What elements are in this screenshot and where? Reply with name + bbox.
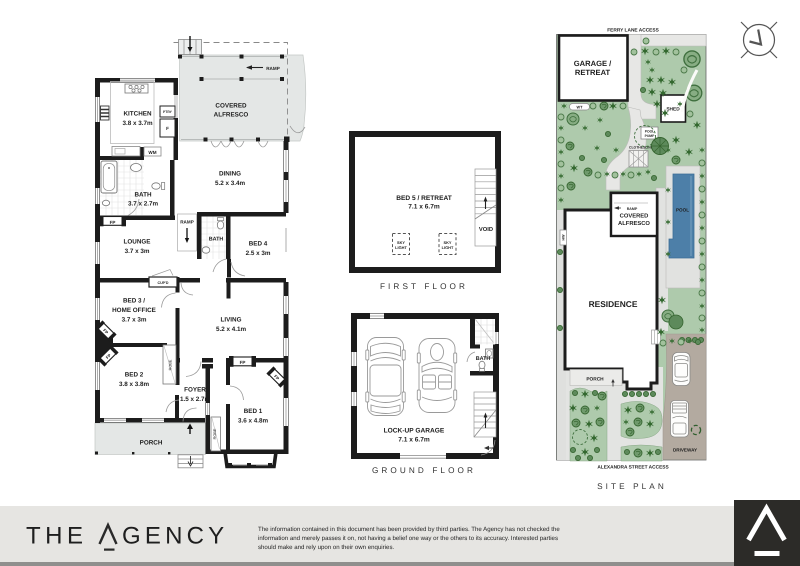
svg-text:5.2 x 4.1m: 5.2 x 4.1m: [216, 326, 247, 333]
svg-text:3.7 x 2.7m: 3.7 x 2.7m: [128, 201, 159, 208]
svg-text:PORCH: PORCH: [586, 377, 604, 383]
svg-text:THE: THE: [26, 523, 88, 550]
svg-text:3.6 x 4.8m: 3.6 x 4.8m: [238, 418, 269, 425]
svg-text:BED 5 / RETREAT: BED 5 / RETREAT: [396, 195, 452, 202]
svg-text:GARAGE /: GARAGE /: [574, 59, 612, 68]
svg-text:KITCHEN: KITCHEN: [124, 110, 152, 117]
svg-text:ROBE: ROBE: [213, 428, 217, 439]
svg-text:HW: HW: [562, 234, 566, 241]
svg-text:COVERED: COVERED: [620, 213, 649, 220]
svg-text:DRIVEWAY: DRIVEWAY: [673, 448, 697, 453]
svg-text:BATH: BATH: [209, 237, 224, 243]
svg-text:LIVING: LIVING: [221, 317, 242, 324]
svg-text:GENCY: GENCY: [122, 523, 228, 550]
svg-text:RAMP: RAMP: [180, 220, 194, 225]
svg-text:RAMP: RAMP: [627, 207, 638, 211]
svg-text:FERRY LANE ACCESS: FERRY LANE ACCESS: [607, 28, 659, 34]
svg-text:3.8 x 3.7m: 3.8 x 3.7m: [122, 120, 153, 127]
svg-text:FIRST FLOOR: FIRST FLOOR: [380, 282, 468, 291]
svg-text:BED 4: BED 4: [249, 241, 268, 248]
svg-text:ALFRESCO: ALFRESCO: [618, 220, 650, 227]
svg-text:BATH: BATH: [476, 356, 491, 362]
svg-text:2.5 x 3m: 2.5 x 3m: [246, 250, 271, 257]
svg-text:F: F: [166, 126, 169, 131]
svg-text:3.7 x 3m: 3.7 x 3m: [122, 317, 147, 324]
svg-text:CUP'D: CUP'D: [157, 281, 168, 285]
svg-text:LIGHT: LIGHT: [395, 245, 407, 250]
svg-text:BED 3 /: BED 3 /: [123, 298, 145, 305]
svg-text:RETREAT: RETREAT: [575, 68, 611, 77]
svg-text:FP: FP: [110, 220, 116, 225]
svg-text:CLOTHESLINE: CLOTHESLINE: [629, 146, 654, 150]
svg-text:GROUND FLOOR: GROUND FLOOR: [372, 466, 476, 475]
svg-text:1.5 x 2.7m: 1.5 x 2.7m: [180, 396, 211, 403]
svg-text:POOL: POOL: [676, 208, 689, 213]
svg-text:COVERED: COVERED: [215, 103, 247, 110]
svg-text:VOID: VOID: [479, 226, 493, 233]
svg-text:SITE PLAN: SITE PLAN: [597, 482, 667, 491]
svg-text:RAMP: RAMP: [266, 66, 280, 71]
svg-text:BED 2: BED 2: [125, 372, 144, 379]
svg-text:WM: WM: [148, 150, 156, 155]
svg-text:information and merely passes: information and merely passes it on, not…: [258, 535, 558, 542]
svg-text:3.7 x 3m: 3.7 x 3m: [125, 248, 150, 255]
svg-text:PTRY: PTRY: [163, 110, 173, 114]
svg-text:BED 1: BED 1: [244, 408, 263, 415]
svg-text:5.2 x 3.4m: 5.2 x 3.4m: [215, 180, 246, 187]
svg-text:HOME OFFICE: HOME OFFICE: [112, 307, 156, 314]
svg-text:FP: FP: [240, 360, 246, 365]
svg-text:ROBE: ROBE: [169, 359, 173, 370]
svg-text:The information contained in t: The information contained in this docume…: [258, 526, 560, 533]
svg-text:FOYER: FOYER: [184, 387, 206, 394]
svg-text:BATH: BATH: [134, 192, 151, 199]
svg-text:SHED: SHED: [666, 107, 680, 113]
svg-text:LOUNGE: LOUNGE: [124, 239, 151, 246]
svg-text:ALFRESCO: ALFRESCO: [214, 112, 249, 119]
svg-text:3.8 x 3.8m: 3.8 x 3.8m: [119, 381, 150, 388]
svg-text:POOL: POOL: [645, 130, 655, 134]
svg-text:should make and rely upon on t: should make and rely upon on their own e…: [258, 544, 394, 551]
svg-text:LIGHT: LIGHT: [442, 245, 454, 250]
svg-text:RESIDENCE: RESIDENCE: [589, 299, 638, 309]
svg-text:7.1 x 6.7m: 7.1 x 6.7m: [408, 204, 440, 211]
svg-text:DINING: DINING: [219, 171, 241, 178]
svg-text:7.1 x 6.7m: 7.1 x 6.7m: [398, 437, 430, 444]
svg-text:PORCH: PORCH: [140, 440, 163, 447]
svg-text:ALEXANDRA STREET ACCESS: ALEXANDRA STREET ACCESS: [597, 465, 669, 471]
svg-text:PUMP: PUMP: [645, 134, 656, 138]
svg-text:WT: WT: [577, 106, 584, 110]
svg-text:LOCK-UP GARAGE: LOCK-UP GARAGE: [384, 428, 445, 435]
